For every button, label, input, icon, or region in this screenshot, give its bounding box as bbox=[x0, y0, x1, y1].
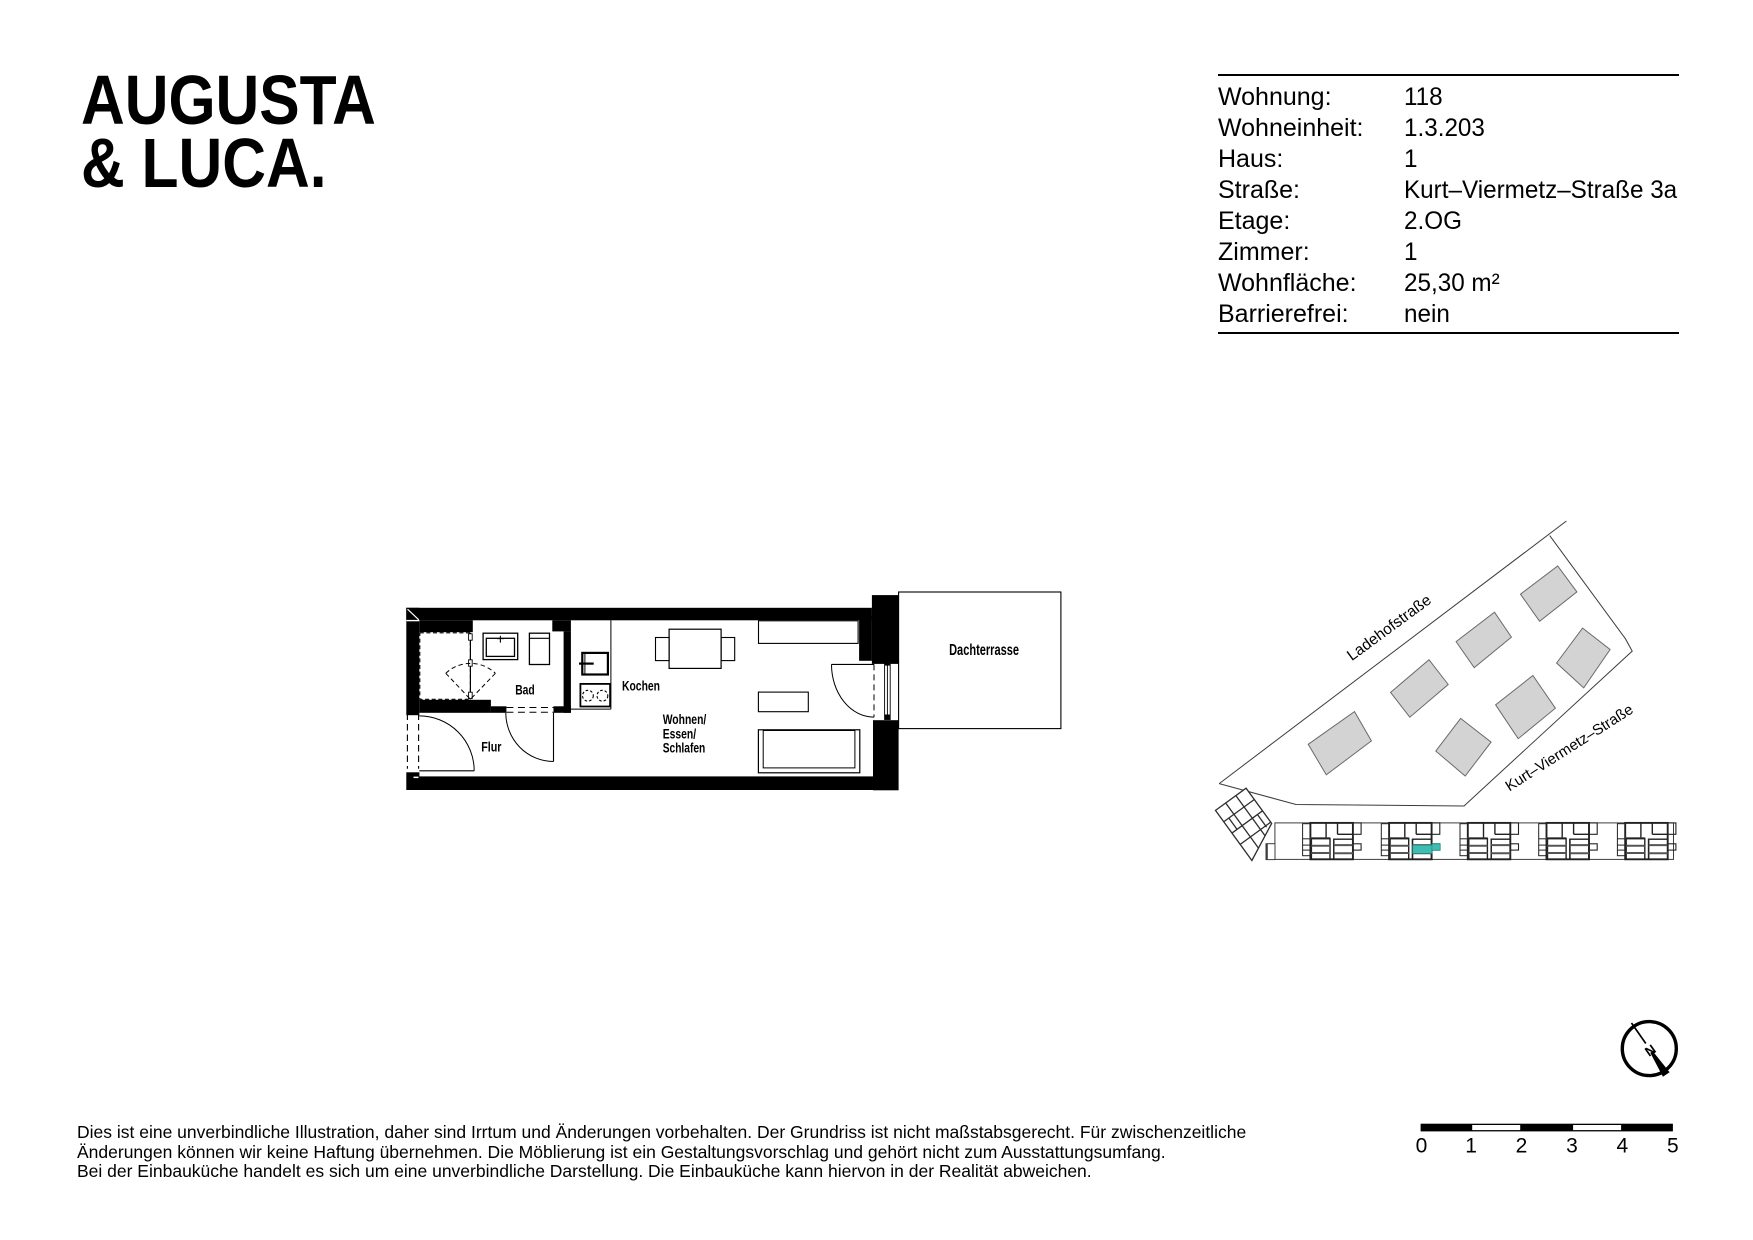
svg-text:Dachterrasse: Dachterrasse bbox=[949, 642, 1019, 659]
svg-text:1: 1 bbox=[1465, 1135, 1477, 1158]
svg-text:3: 3 bbox=[1566, 1135, 1578, 1158]
svg-text:4: 4 bbox=[1617, 1135, 1629, 1158]
svg-text:Flur: Flur bbox=[481, 740, 502, 755]
svg-text:Essen/: Essen/ bbox=[663, 727, 697, 742]
svg-text:0: 0 bbox=[1416, 1135, 1428, 1158]
svg-text:Schlafen: Schlafen bbox=[663, 741, 706, 756]
svg-text:Bad: Bad bbox=[515, 681, 535, 697]
svg-text:2: 2 bbox=[1516, 1135, 1528, 1158]
svg-text:Kochen: Kochen bbox=[622, 678, 660, 693]
svg-text:Ladehofstraße: Ladehofstraße bbox=[1344, 592, 1435, 665]
svg-text:5: 5 bbox=[1667, 1135, 1679, 1158]
svg-text:Wohnen/: Wohnen/ bbox=[663, 712, 707, 727]
